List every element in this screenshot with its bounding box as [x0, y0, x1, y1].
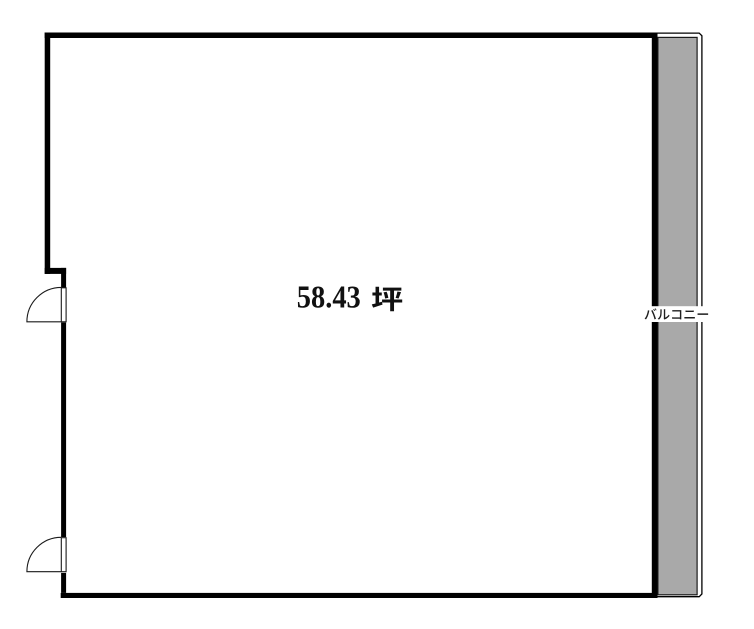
svg-text:58.43: 58.43: [297, 279, 361, 315]
